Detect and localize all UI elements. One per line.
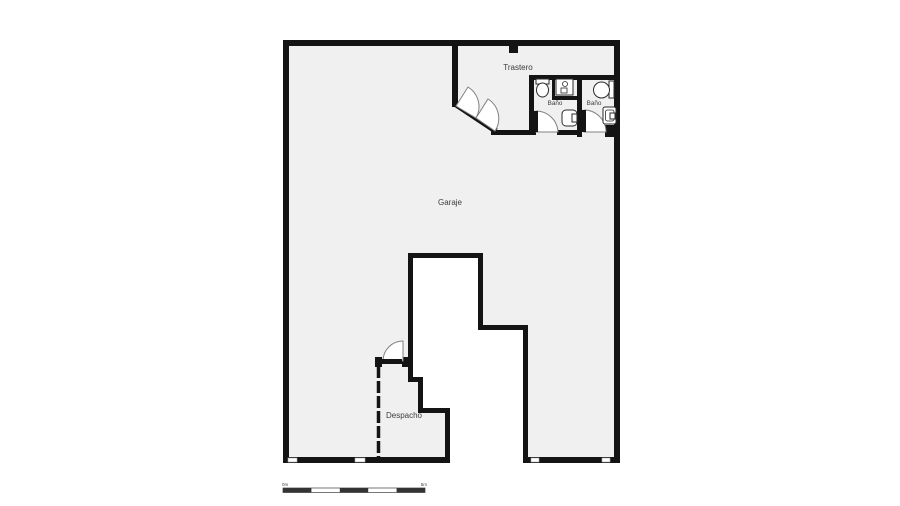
wall-despacho-step1-v — [418, 377, 423, 413]
wall-cutout-right-upper — [478, 253, 483, 330]
floorplan-drawing: Garaje Trastero Baño Baño Despacho 0m 5m — [0, 0, 900, 506]
floorplan-canvas: Garaje Trastero Baño Baño Despacho 0m 5m — [0, 0, 900, 506]
room-label-bano-left: Baño — [548, 100, 563, 107]
wall-bath-divider — [577, 75, 582, 137]
wall-outer-right — [614, 40, 620, 463]
window-notch-2 — [355, 458, 365, 462]
window-notch-4 — [602, 458, 610, 462]
wall-bath-bottom-corner — [605, 125, 620, 137]
wall-outer-top — [283, 40, 620, 46]
wall-despacho-door-stub — [375, 357, 382, 367]
wall-cutout-right-lower — [523, 325, 528, 463]
wall-cutout-left — [408, 253, 413, 382]
wall-outer-left — [283, 40, 289, 463]
scale-bar-segment — [340, 488, 368, 493]
window-notch-3 — [531, 458, 539, 462]
wall-trastero-bottom — [491, 130, 536, 135]
wall-trastero-left — [452, 40, 458, 107]
wall-outer-bottom-left — [283, 457, 450, 463]
toilet-bowl-icon — [594, 82, 610, 98]
scale-bar-start-label: 0m — [282, 482, 289, 487]
wall-alcove-divider — [552, 78, 555, 99]
wall-cutout-top — [408, 253, 483, 258]
scale-bar-segment — [283, 488, 311, 493]
scale-bar-segment — [397, 488, 425, 493]
wall-sink-tap-icon — [610, 113, 615, 119]
wall-top-stub — [509, 46, 518, 53]
room-label-bano-right: Baño — [587, 100, 602, 107]
room-label-despacho: Despacho — [386, 411, 423, 420]
despacho-door-leaf — [381, 359, 402, 364]
wall-cutout-step-horizontal — [478, 325, 528, 330]
scale-bar-end-label: 5m — [421, 482, 428, 487]
bano-right-door-leaf — [582, 110, 586, 132]
room-label-garaje: Garaje — [438, 198, 463, 207]
scale-bar: 0m 5m — [282, 482, 427, 493]
wall-bath-left — [529, 75, 534, 135]
wall-bath-bottom-mid — [557, 130, 582, 135]
room-label-trastero: Trastero — [503, 63, 533, 72]
toilet-bowl-icon — [537, 83, 549, 97]
window-notch-1 — [288, 458, 297, 462]
bano-left-door-leaf — [534, 111, 538, 132]
wall-sink-tap-icon — [572, 114, 577, 122]
wall-despacho-step2-v — [445, 408, 450, 463]
